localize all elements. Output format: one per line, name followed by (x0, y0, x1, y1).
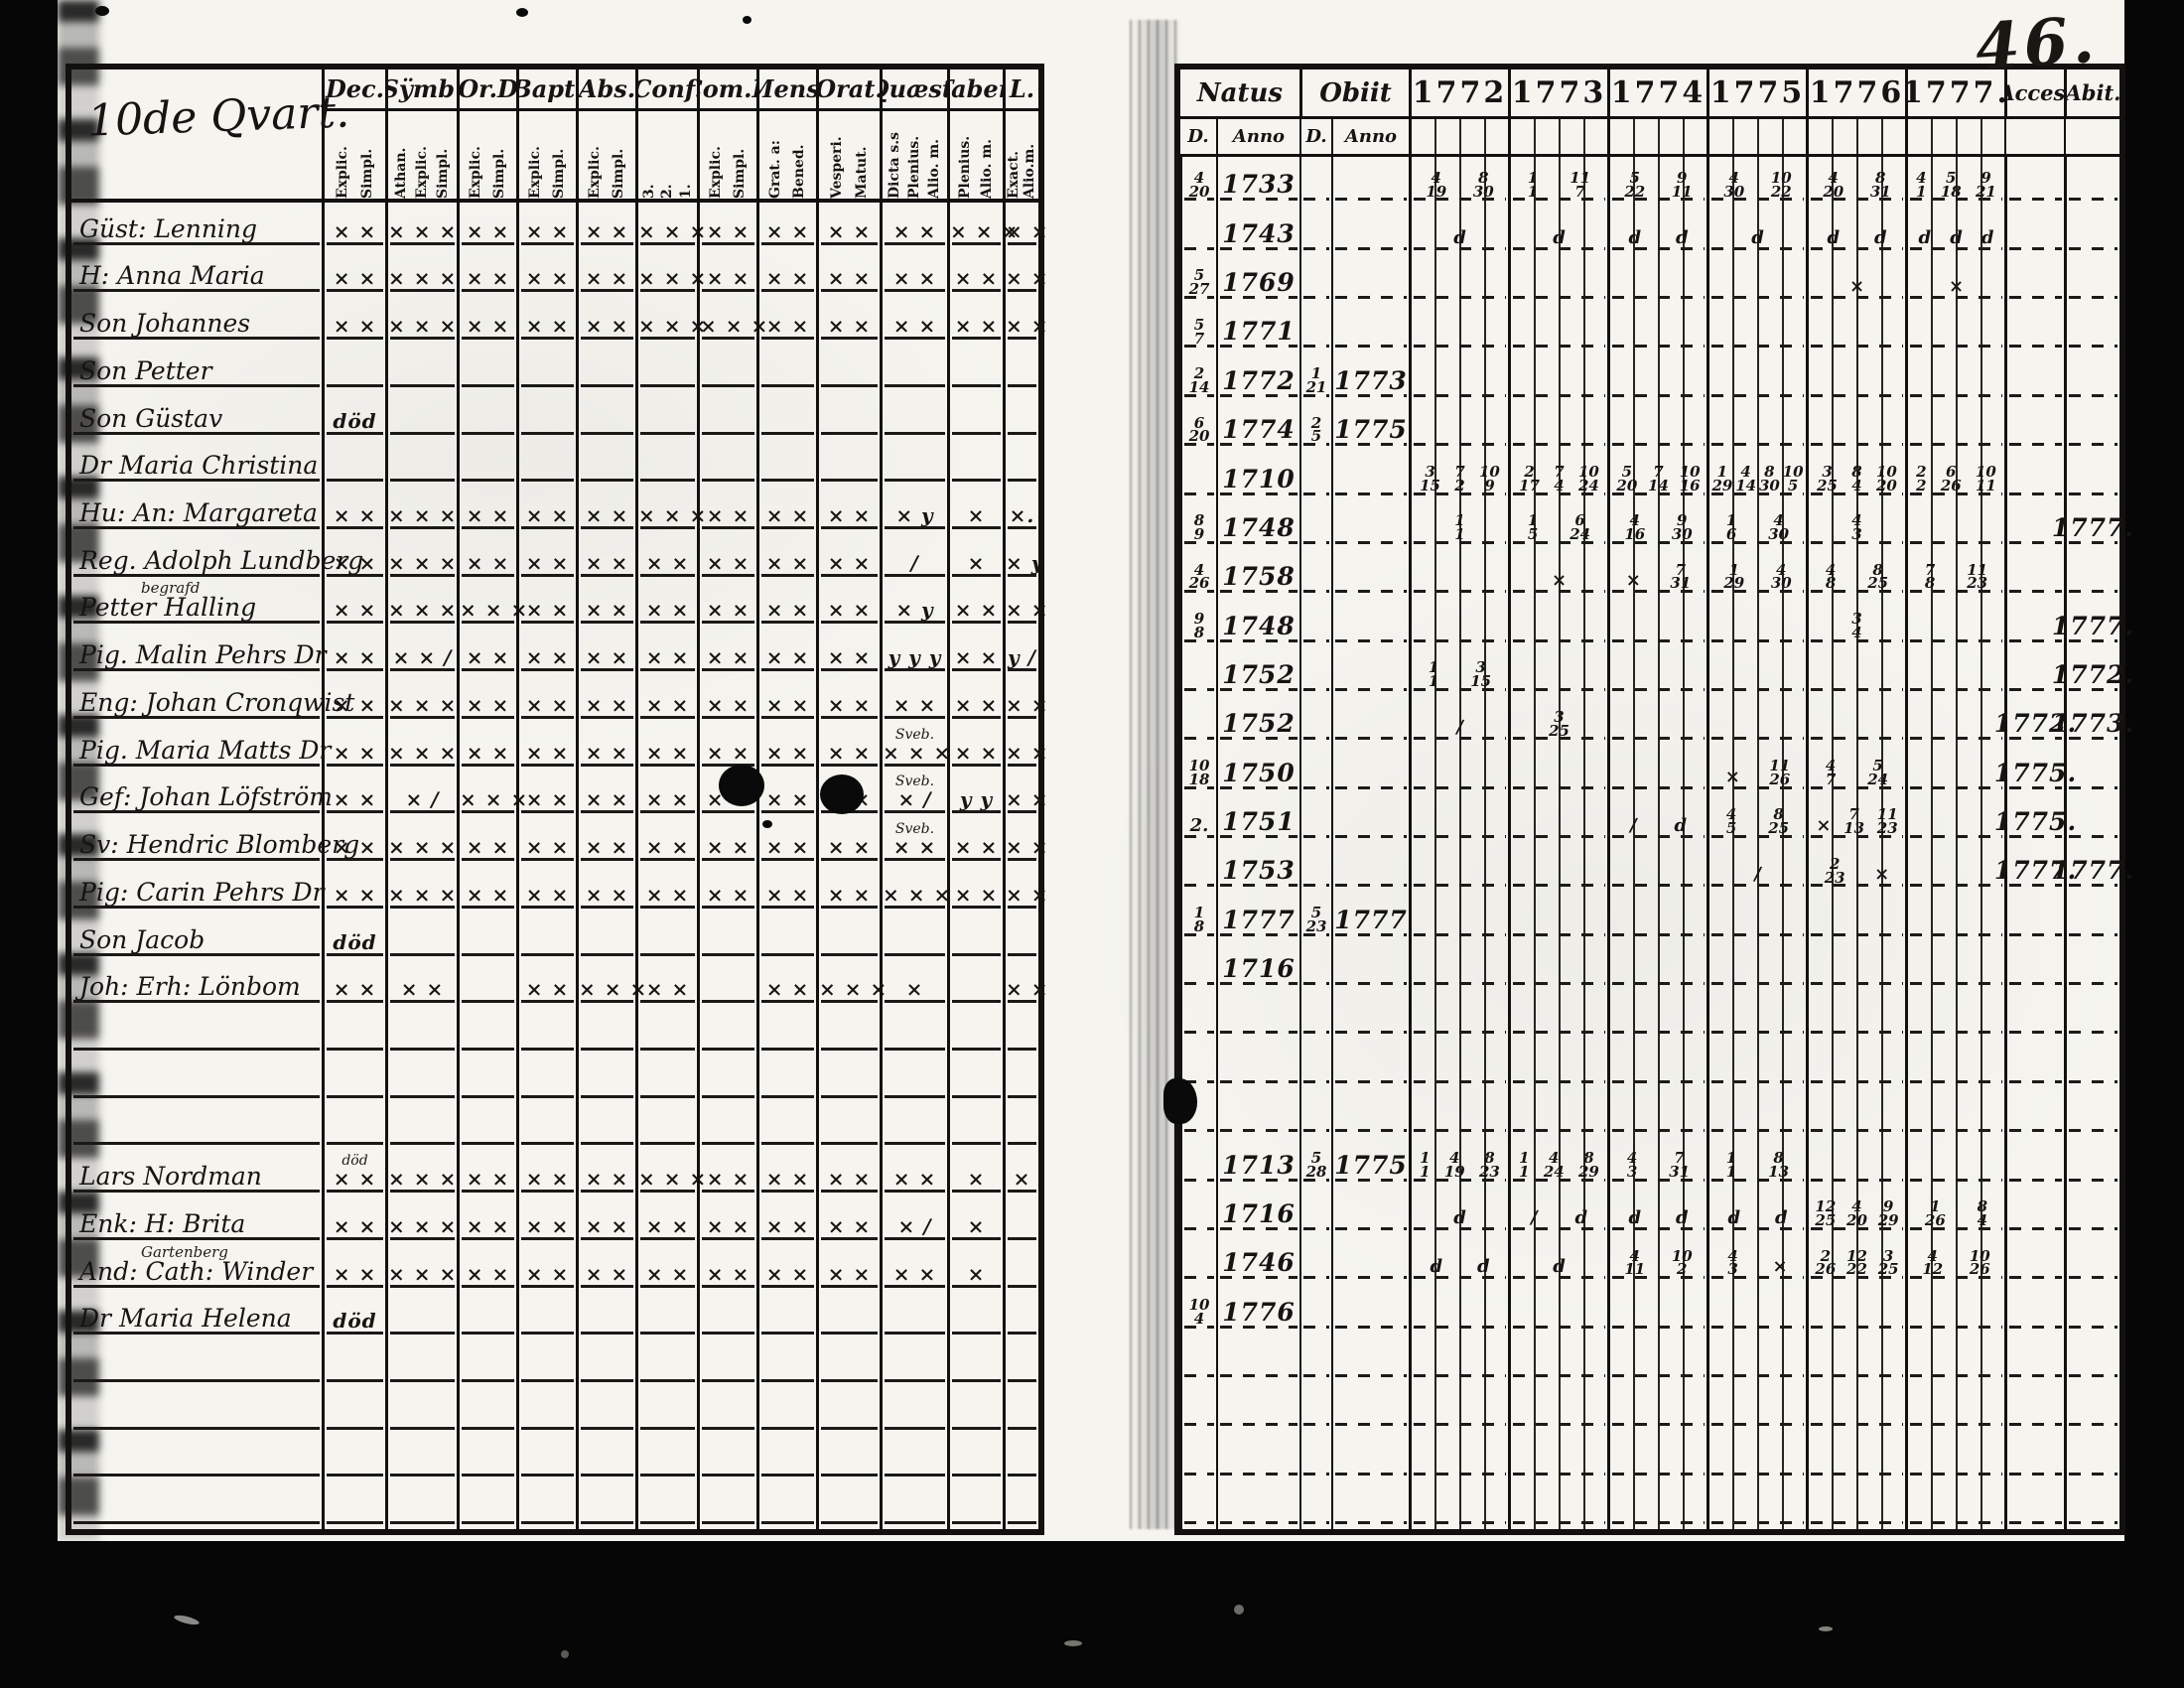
year-cell: d (1508, 1235, 1607, 1284)
year-cell (1508, 794, 1607, 843)
date-fraction: 528 (1306, 1152, 1327, 1180)
marks: × × × (388, 1167, 457, 1191)
date-fraction: 1022 (1771, 172, 1792, 200)
mark: d (1919, 227, 1932, 248)
year-cell: ddd (1905, 206, 2004, 254)
mark-cell (322, 1339, 385, 1387)
obiit-day-cell (1299, 1284, 1331, 1333)
natus-year-cell: 1753 (1216, 843, 1299, 892)
obiit-year-cell (1331, 941, 1409, 990)
name-cell (71, 1103, 322, 1151)
table-row (1180, 1431, 2119, 1479)
marks: × × (1006, 835, 1038, 859)
year-cell (1607, 696, 1706, 745)
date-fraction: 1126 (1769, 760, 1790, 787)
marks: × × (519, 1167, 576, 1191)
mark-cell: × × (576, 1150, 635, 1197)
year-cell (1508, 843, 1607, 892)
obiit-year-cell: 1777 (1331, 892, 1409, 940)
mark-cell: × × × (385, 250, 457, 298)
year-cell: 11424829 (1508, 1137, 1607, 1186)
marks: × × × (638, 314, 697, 338)
marks: × × (579, 741, 635, 765)
mark-cell: × × (322, 866, 385, 914)
mark-cell: × × (756, 1245, 816, 1293)
mark-cell: × × (635, 1197, 697, 1245)
marks: × × (460, 835, 516, 859)
obiit-day-cell (1299, 598, 1331, 646)
mark-cell: × × × (457, 772, 516, 819)
marks: × × (759, 219, 816, 243)
mark: d (1827, 227, 1840, 248)
natus-day-cell (1180, 696, 1216, 745)
mark-cell (880, 1103, 947, 1151)
mark-cell (457, 345, 516, 392)
mark-cell (816, 1339, 880, 1387)
year-cell (1607, 352, 1706, 401)
date-fraction: 325 (1549, 711, 1570, 739)
marks: × × (519, 741, 576, 765)
mark-cell (880, 392, 947, 440)
mark-cell: × × (816, 534, 880, 582)
marks: × × (325, 977, 385, 1001)
table-row: Enk: H: Brita× ×× × ×× ×× ×× ×× ×× ×× ××… (71, 1197, 1038, 1245)
mark-cell: × × (947, 724, 1003, 772)
year-cell: 11813 (1706, 1137, 1806, 1186)
mark-cell (816, 1103, 880, 1151)
obiit-day-cell (1299, 696, 1331, 745)
marks: × × (759, 598, 816, 622)
natus-day-cell (1180, 1334, 1216, 1382)
year-cell (1508, 402, 1607, 451)
mark-cell: × × (1003, 203, 1038, 250)
mark-cell: × × (816, 1150, 880, 1197)
date-fraction: 929 (1878, 1200, 1899, 1228)
marks: y y (950, 787, 1003, 811)
marks: × × (325, 1167, 385, 1191)
abit-cell (2064, 1088, 2119, 1137)
mark-cell (516, 1008, 576, 1055)
year-cell (1905, 843, 2004, 892)
mark-cell: × × (576, 1197, 635, 1245)
mark-cell (1003, 1008, 1038, 1055)
mark-cell: Sveb.× ∕ (880, 772, 947, 819)
marks: × × (950, 598, 1003, 622)
marks: × × (519, 835, 576, 859)
mark-cell (1003, 1055, 1038, 1103)
column-sublabel: Simpl. (552, 114, 567, 199)
marks: × × (460, 883, 516, 907)
year-cell (1607, 745, 1706, 793)
date-fraction: 11 (1519, 1152, 1529, 1180)
marks: × × (700, 1262, 756, 1286)
marks: × × (519, 1214, 576, 1238)
mark-cell: × × (322, 629, 385, 676)
mark-cell (947, 345, 1003, 392)
abit-cell (2064, 451, 2119, 499)
date-fraction: 43 (1727, 1250, 1737, 1278)
year-cell: 226261011 (1905, 451, 2004, 499)
table-row: Güst: Lenning× ×× × ×× ×× ×× ×× × ×× ×× … (71, 203, 1038, 250)
year-cell (1409, 892, 1508, 940)
year-cell: d (1409, 206, 1508, 254)
person-name: Enk: H: Brita (79, 1209, 245, 1238)
mark-cell: × × (516, 818, 576, 866)
table-row: 1716 (1180, 941, 2119, 990)
mark-cell: × × (697, 724, 756, 772)
natus-year-cell: 1710 (1216, 451, 1299, 499)
mark-cell (576, 440, 635, 488)
mark-cell (947, 440, 1003, 488)
marks: × × (519, 219, 576, 243)
marks: × × (883, 219, 947, 243)
mark-cell: × × × (697, 297, 756, 345)
mark-cell: × (947, 487, 1003, 534)
year-cell: 45825 (1706, 794, 1806, 843)
column-sublabel: Alio. m. (980, 114, 995, 199)
acces-cell (2004, 304, 2064, 352)
natus-day-cell: 57 (1180, 304, 1216, 352)
year-cell (1706, 402, 1806, 451)
marks: × (950, 1214, 1003, 1238)
table-row: 1710315721092177410245207141016129414830… (1180, 451, 2119, 499)
marks: × × (579, 883, 635, 907)
marks: × × (325, 219, 385, 243)
year-cell (1607, 941, 1706, 990)
natus-day-cell: 104 (1180, 1284, 1216, 1333)
year-cell: 31572109 (1409, 451, 1508, 499)
column-sublabels: Explic.Simpl. (579, 111, 635, 199)
date-fraction: 911 (1672, 172, 1693, 200)
mark: d (1676, 1207, 1689, 1228)
marks: × × (700, 883, 756, 907)
mark-cell (385, 1387, 457, 1435)
header-subs-row: D.AnnoD.Anno (1180, 119, 2119, 154)
year-cell (1806, 352, 1905, 401)
mark-cell (756, 1008, 816, 1055)
mark-cell: × × (947, 297, 1003, 345)
year-cell (1806, 1431, 1905, 1479)
mark-cell (635, 1103, 697, 1151)
marks: × × × (819, 977, 880, 1001)
obiit-year-cell: 1775 (1331, 402, 1409, 451)
year-cell: 5207141016 (1607, 451, 1706, 499)
year-cell: 41518921 (1905, 157, 2004, 206)
year-cell (1409, 1382, 1508, 1431)
year-cell (1706, 1382, 1806, 1431)
mark-cell (322, 1481, 385, 1529)
mark-cell: död× × (322, 1150, 385, 1197)
year-cell: 11419823 (1409, 1137, 1508, 1186)
year-cell: × (1806, 255, 1905, 304)
mark-cell (697, 440, 756, 488)
marks: × × × (700, 314, 756, 338)
year-cell (1905, 402, 2004, 451)
marks: × × (460, 314, 516, 338)
mark: × (1725, 767, 1740, 787)
year-cell: 43 (1806, 500, 1905, 549)
mark-cell: × × (697, 866, 756, 914)
table-row (1180, 1088, 2119, 1137)
acces-cell (2004, 451, 2064, 499)
scan-speck (174, 1614, 201, 1626)
year-cell: dd (1409, 1235, 1508, 1284)
mark-cell (576, 345, 635, 392)
obiit-day-cell (1299, 745, 1331, 793)
mark-cell (1003, 1339, 1038, 1387)
marks: × × × (638, 219, 697, 243)
column-sublabel: Explic. (709, 114, 724, 199)
natus-year-cell: 1772 (1216, 352, 1299, 401)
obiit-year-cell (1331, 647, 1409, 696)
obiit-day-cell (1299, 451, 1331, 499)
mark-cell: × × × (385, 1245, 457, 1293)
year-cell (1409, 941, 1508, 990)
left-table-header: 10de Qvart.Dec.Explic.Simpl.Sÿmb.Athan.E… (71, 70, 1038, 203)
mark-cell: × × (756, 724, 816, 772)
marks: × × (519, 977, 576, 1001)
marks: × × (460, 693, 516, 717)
natus-year-cell: 1752 (1216, 696, 1299, 745)
mark-cell: × × × (385, 1150, 457, 1197)
mark-cell (1003, 1245, 1038, 1293)
mark-cell (947, 1435, 1003, 1482)
marks: × × (759, 551, 816, 575)
mark-cell: × × × (635, 1150, 697, 1197)
natus-day-cell (1180, 451, 1216, 499)
date-fraction: 1011 (1976, 466, 1996, 493)
mark: d (1674, 815, 1687, 836)
marks: × × (460, 1167, 516, 1191)
date-fraction: 713 (1843, 808, 1864, 836)
year-cell: 12684 (1905, 1187, 2004, 1235)
year-cell: 416930 (1607, 500, 1706, 549)
column-sublabel: Simpl. (733, 114, 748, 199)
mark-cell: × × (457, 487, 516, 534)
column-sublabel: Explic. (588, 114, 603, 199)
mark-cell (947, 961, 1003, 1009)
scan-speck (1234, 1605, 1244, 1615)
column-label: Mens. (759, 70, 816, 111)
mark: d (1628, 227, 1641, 248)
marks: × ∕ (388, 787, 457, 811)
mark: ∕ (1531, 1207, 1538, 1228)
year-cell: d (1706, 206, 1806, 254)
year-cell: 43× (1706, 1235, 1806, 1284)
mark-cell: × × (697, 1197, 756, 1245)
date-fraction: 813 (1768, 1152, 1789, 1180)
table-row: 2.1751∕d45825×71311231775. (1180, 794, 2119, 843)
mark-cell (947, 1008, 1003, 1055)
table-row (1180, 1039, 2119, 1087)
abit-cell (2064, 1480, 2119, 1529)
obiit-day-cell (1299, 1334, 1331, 1382)
mark-cell: × × (322, 250, 385, 298)
marks: × (1006, 1167, 1038, 1191)
date-fraction: 117 (1570, 172, 1590, 200)
person-name: Reg. Adolph Lundberg (79, 546, 363, 575)
year-cell (1409, 843, 1508, 892)
mark-cell: × × (322, 724, 385, 772)
obiit-year-cell (1331, 1431, 1409, 1479)
mark-cell (457, 1293, 516, 1340)
ink-blot (719, 765, 764, 806)
marks: × × (819, 314, 880, 338)
acces-cell (2004, 255, 2064, 304)
date-fraction: 74 (1554, 466, 1564, 493)
column-header: Conf.3.2.1. (635, 70, 697, 199)
table-row: Hu: An: Margareta× ×× × ×× ×× ×× ×× × ××… (71, 487, 1038, 534)
natus-day-cell: 18 (1180, 892, 1216, 940)
date-fraction: 315 (1420, 466, 1440, 493)
marks: × × (819, 835, 880, 859)
year-cell (1706, 255, 1806, 304)
marks: × (950, 503, 1003, 527)
acces-cell (2004, 352, 2064, 401)
marks: × × (759, 693, 816, 717)
mark-cell (457, 961, 516, 1009)
natus-year-cell: 1716 (1216, 941, 1299, 990)
year-cell (1508, 941, 1607, 990)
obiit-year-cell (1331, 255, 1409, 304)
date-fraction: 523 (1306, 907, 1327, 934)
mark-cell (516, 1055, 576, 1103)
marks: × × (579, 598, 635, 622)
attendance-years-table: NatusObiit177217731774177517761777.Acces… (1174, 64, 2125, 1535)
acces-cell (2004, 1187, 2064, 1235)
marks: × × (759, 1214, 816, 1238)
natus-day-cell (1180, 1187, 1216, 1235)
mark-cell (1003, 1197, 1038, 1245)
marks: × (950, 551, 1003, 575)
year-cell (1508, 352, 1607, 401)
ink-blot (1163, 1078, 1197, 1124)
date-fraction: 41 (1916, 172, 1926, 200)
table-row (1180, 1382, 2119, 1431)
date-fraction: 1123 (1877, 808, 1898, 836)
date-fraction: 620 (1189, 417, 1210, 445)
natus-year-cell: 1713 (1216, 1137, 1299, 1186)
mark-cell: × × (635, 866, 697, 914)
marks: död (325, 1309, 385, 1333)
mark-cell: × × (816, 629, 880, 676)
year-cell (1607, 647, 1706, 696)
mark-cell (947, 392, 1003, 440)
marks: × × (579, 503, 635, 527)
mark-cell: × × (516, 1150, 576, 1197)
table-row: Son Jacobdöd (71, 914, 1038, 961)
year-cell (1905, 1039, 2004, 1087)
mark: d (1676, 227, 1689, 248)
mark-cell: × (947, 534, 1003, 582)
marks: × × (759, 883, 816, 907)
date-fraction: 72 (1454, 466, 1464, 493)
mark-cell (635, 345, 697, 392)
marks: × × (519, 266, 576, 290)
natus-year-cell: 1771 (1216, 304, 1299, 352)
mark-cell: × × × (385, 487, 457, 534)
mark-cell (322, 1435, 385, 1482)
mark-cell (816, 392, 880, 440)
year-cell (1607, 1382, 1706, 1431)
year-cell: 16430 (1706, 500, 1806, 549)
marks: × × × (460, 787, 516, 811)
year-cell: 47524 (1806, 745, 1905, 793)
date-fraction: 411 (1624, 1250, 1645, 1278)
acces-cell: 1775. (2004, 794, 2064, 843)
mark-cell: × × (756, 1150, 816, 1197)
marks: × × (950, 741, 1003, 765)
person-name: H: Anna Maria (79, 261, 265, 290)
column-header: Abs.Explic.Simpl. (576, 70, 635, 199)
obiit-year-cell (1331, 549, 1409, 598)
table-row: GartenbergAnd: Cath: Winder× ×× × ×× ×× … (71, 1245, 1038, 1293)
mark-cell (697, 345, 756, 392)
mark: × (1552, 570, 1567, 591)
table-row (71, 1103, 1038, 1151)
year-cell (1607, 1039, 1706, 1087)
mark-cell: × × (635, 772, 697, 819)
natus-year-cell: 1748 (1216, 598, 1299, 646)
marks: × × (325, 883, 385, 907)
marks: × × × (388, 314, 457, 338)
mark-cell: × × (516, 676, 576, 724)
date-fraction: 315 (1470, 661, 1491, 689)
person-name: Gef: Johan Löfström (79, 782, 333, 811)
column-sublabel: Exact. (1007, 114, 1022, 199)
year-cell: 4301022 (1706, 157, 1806, 206)
year-cell (1607, 1334, 1706, 1382)
table-row: Son Johannes× ×× × ×× ×× ×× ×× × ×× × ××… (71, 297, 1038, 345)
mark-cell: × × (947, 866, 1003, 914)
marks: × × (519, 503, 576, 527)
year-cell: 325 (1508, 696, 1607, 745)
column-header: L.Exact.Alio.m. (1003, 70, 1038, 199)
year-cell (1806, 402, 1905, 451)
mark-cell (635, 1339, 697, 1387)
year-cell (1706, 352, 1806, 401)
mark-cell: × × (816, 487, 880, 534)
natus-year-cell (1216, 990, 1299, 1039)
table-row: 1746ddd41110243×22612223254121026 (1180, 1235, 2119, 1284)
obiit-anno-subheader: Anno (1331, 119, 1409, 154)
mark-cell (457, 1435, 516, 1482)
date-fraction: 825 (1768, 808, 1789, 836)
table-row: Dr Maria Helenadöd (71, 1293, 1038, 1340)
mark-cell: × × (880, 1245, 947, 1293)
marks: × × ∕ (388, 645, 457, 669)
mark-cell (516, 1339, 576, 1387)
year-cell: 325841020 (1806, 451, 1905, 499)
page-number: 46. (1974, 1, 2127, 85)
mark-cell (635, 1481, 697, 1529)
mark-cell (385, 392, 457, 440)
natus-day-cell (1180, 1137, 1216, 1186)
mark-cell: × × (322, 1197, 385, 1245)
marks: × × (1006, 883, 1038, 907)
obiit-day-cell (1299, 1235, 1331, 1284)
table-row: Gef: Johan Löfström× ×× ∕× × ×× ×× ×× ××… (71, 772, 1038, 819)
marks: × × (700, 1167, 756, 1191)
mark-cell (385, 1339, 457, 1387)
obiit-year-cell (1331, 1088, 1409, 1137)
date-fraction: 226 (1815, 1250, 1836, 1278)
year-subcolumns (1905, 119, 2004, 154)
mark-cell: × × (635, 676, 697, 724)
obiit-day-cell: 121 (1299, 352, 1331, 401)
marks: × × (579, 645, 635, 669)
mark-cell (880, 1435, 947, 1482)
